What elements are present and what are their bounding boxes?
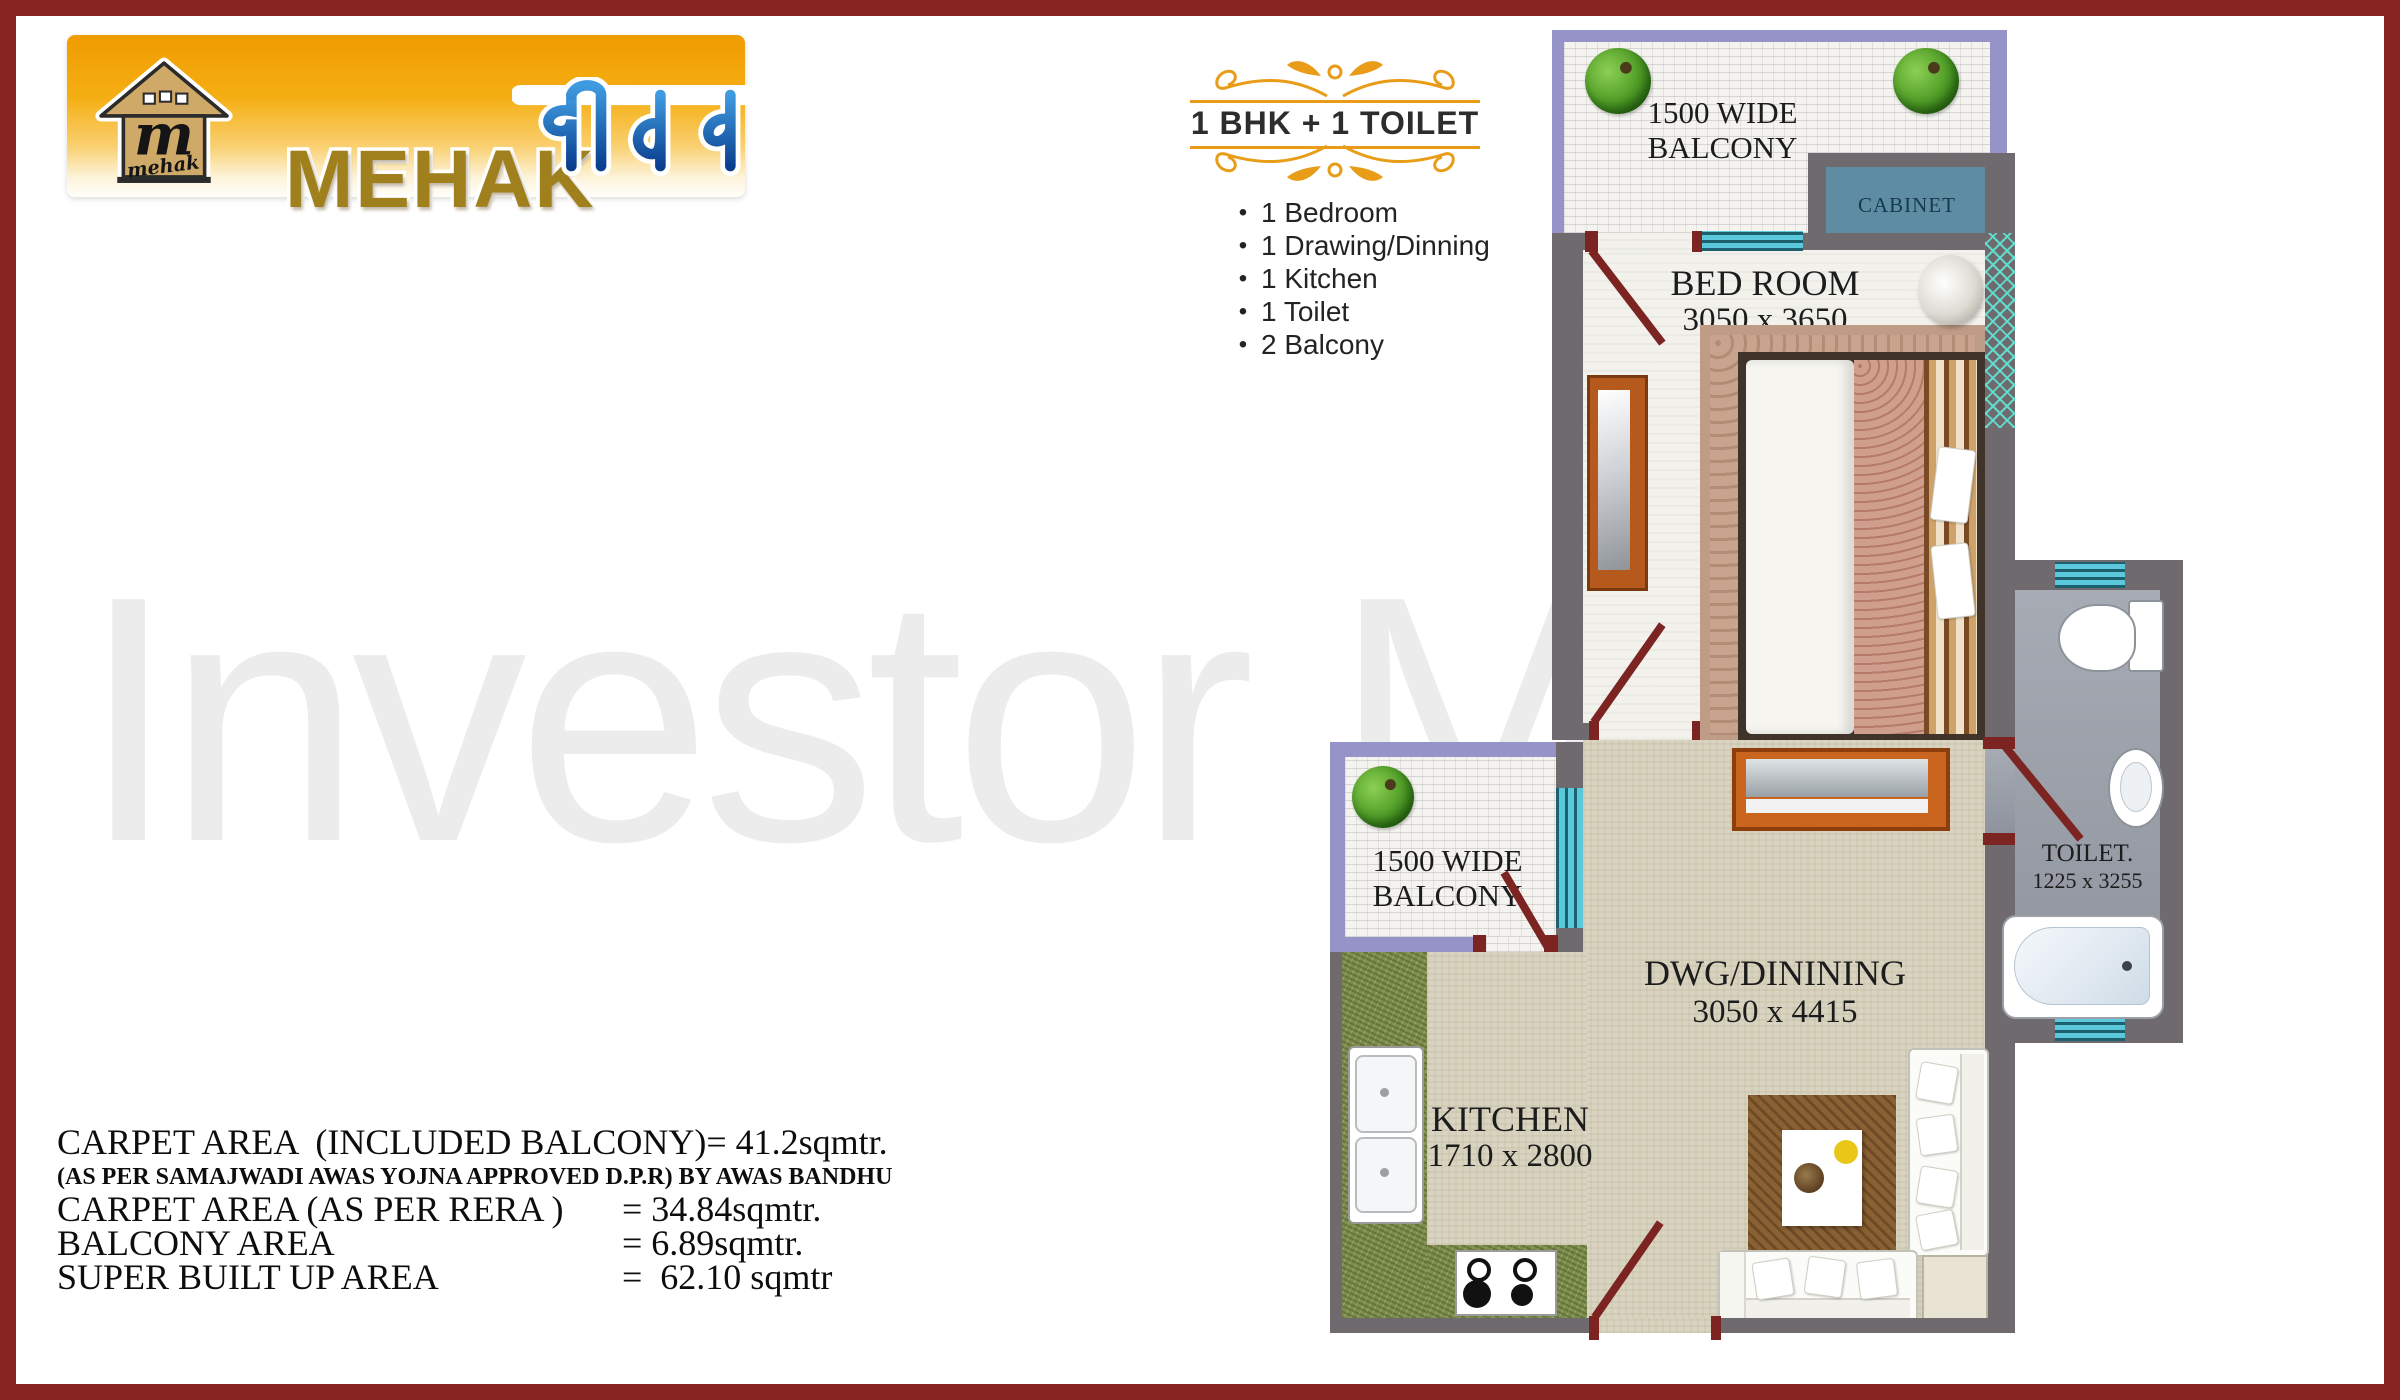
area-label: CARPET AREA (AS PER RERA ) xyxy=(57,1192,622,1226)
brand-logo-banner: m mehak MEHAK जीवन xyxy=(67,35,745,197)
area-line-note: (AS PER SAMAJWADI AWAS YOJNA APPROVED D.… xyxy=(57,1162,892,1192)
area-label: SUPER BUILT UP AREA xyxy=(57,1260,622,1294)
area-line-carpet-balcony: CARPET AREA (INCLUDED BALCONY) = 41.2sqm… xyxy=(57,1122,892,1162)
area-label: BALCONY AREA xyxy=(57,1226,622,1260)
area-value: = 6.89sqmtr. xyxy=(622,1226,803,1260)
area-line-carpet-rera: CARPET AREA (AS PER RERA ) = 34.84sqmtr. xyxy=(57,1192,892,1226)
mehak-house-icon: m mehak xyxy=(89,57,239,185)
area-note-label: (AS PER SAMAJWADI AWAS YOJNA APPROVED D.… xyxy=(57,1162,892,1192)
area-value: = 62.10 sqmtr xyxy=(622,1260,832,1294)
door-swing-bedroom-dwg xyxy=(1596,628,1660,719)
brand-name-hindi xyxy=(512,77,777,182)
area-value: = 34.84sqmtr. xyxy=(622,1192,821,1226)
door-swing-bedroom-entry xyxy=(1594,254,1660,340)
area-summary: CARPET AREA (INCLUDED BALCONY) = 41.2sqm… xyxy=(57,1122,892,1294)
area-line-balcony: BALCONY AREA = 6.89sqmtr. xyxy=(57,1226,892,1260)
door-swing-balcony-kitchen xyxy=(1506,876,1547,946)
door-swing-main-entrance xyxy=(1597,1226,1658,1314)
door-swing-toilet xyxy=(2008,750,2078,836)
area-label: CARPET AREA (INCLUDED BALCONY) xyxy=(57,1122,706,1162)
area-value: = 41.2sqmtr. xyxy=(706,1122,887,1162)
area-line-super-builtup: SUPER BUILT UP AREA = 62.10 sqmtr xyxy=(57,1260,892,1294)
